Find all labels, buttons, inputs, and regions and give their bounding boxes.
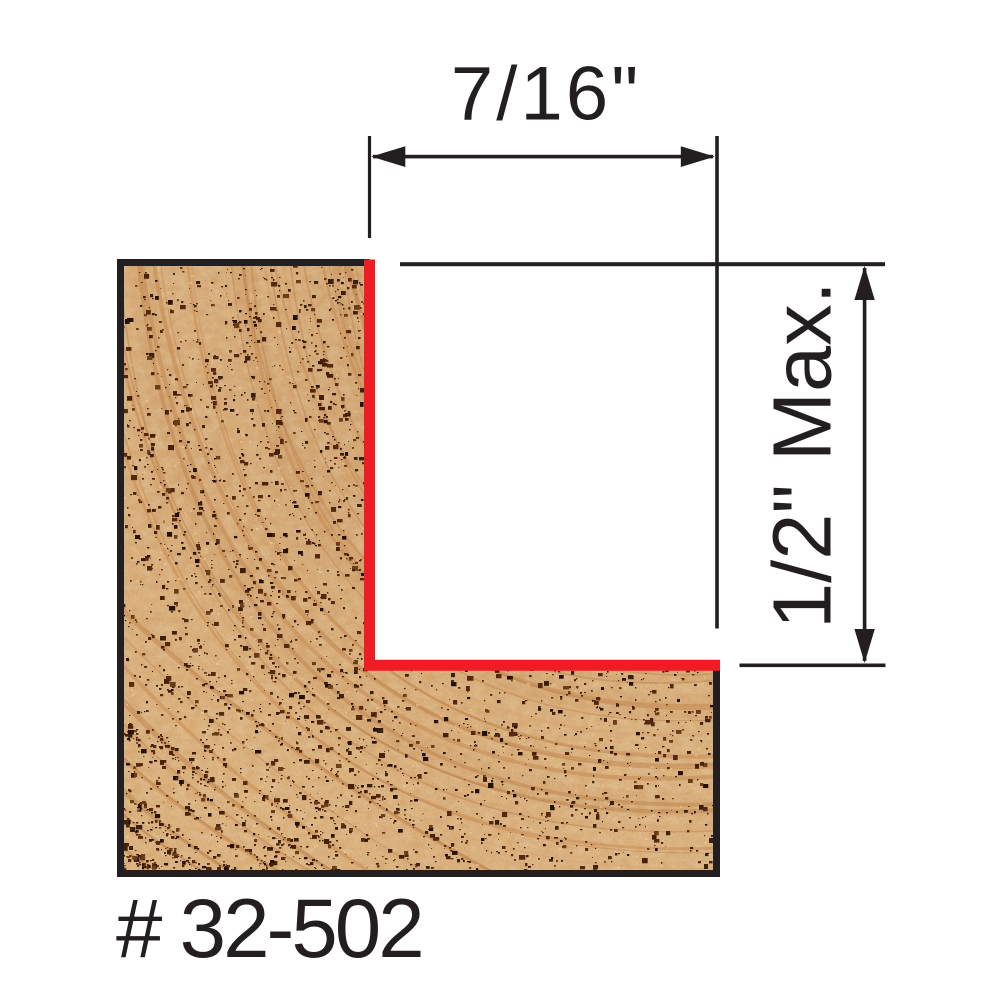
svg-text:# 32-502: # 32-502 bbox=[116, 881, 422, 975]
svg-text:1/2" Max.: 1/2" Max. bbox=[756, 281, 849, 629]
svg-text:7/16": 7/16" bbox=[451, 51, 641, 136]
